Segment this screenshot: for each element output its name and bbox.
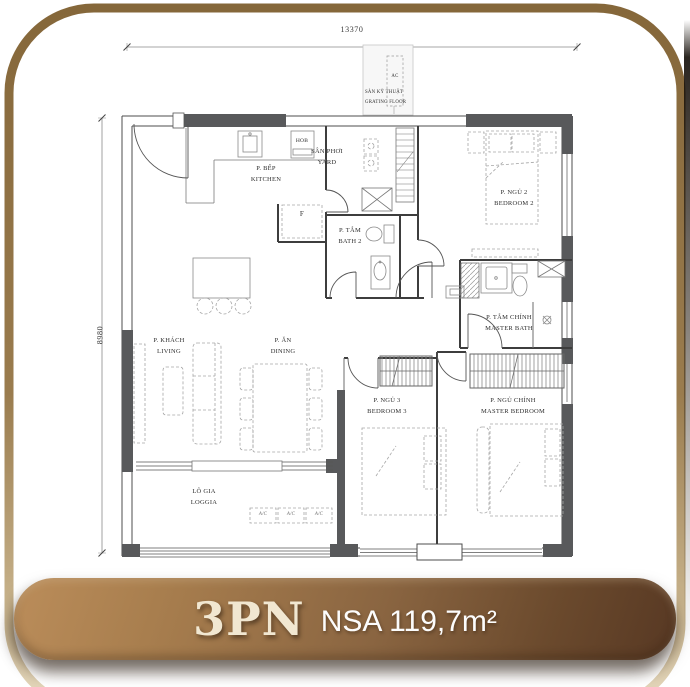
wall-fills [122,114,573,557]
floorplan-page: { "plan": { "dimensions": { "top": "1337… [0,0,690,687]
interior-walls [278,126,572,544]
outer-walls [122,116,572,556]
windows [136,113,567,560]
door-swings [134,124,502,388]
unit-type-banner: 3PN NSA 119,7m² [14,578,676,660]
unit-type-label: 3PN [193,592,305,646]
floorplan-drawing [0,0,690,580]
unit-area-label: NSA 119,7m² [321,605,497,639]
wardrobes [380,354,564,388]
fixtures [193,128,565,324]
technical-floor-box [363,45,413,115]
